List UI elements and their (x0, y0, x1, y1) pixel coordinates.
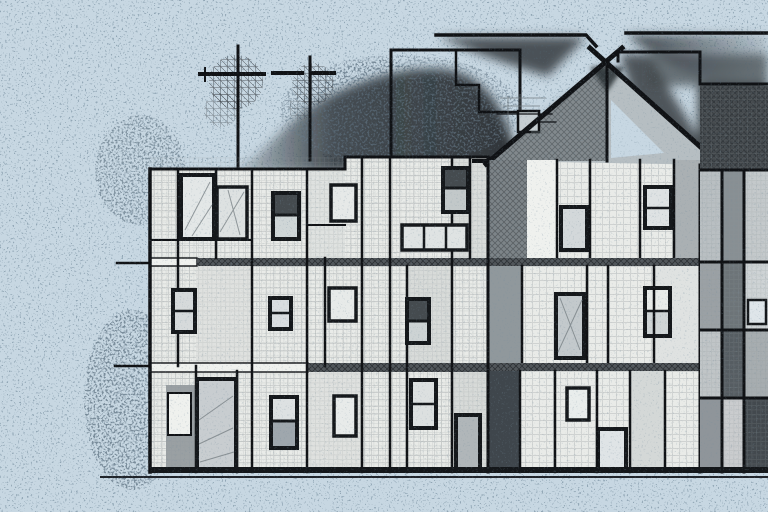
paper-grain-overlay (0, 0, 768, 512)
illustration-canvas (0, 0, 768, 512)
building-illustration (0, 0, 768, 512)
